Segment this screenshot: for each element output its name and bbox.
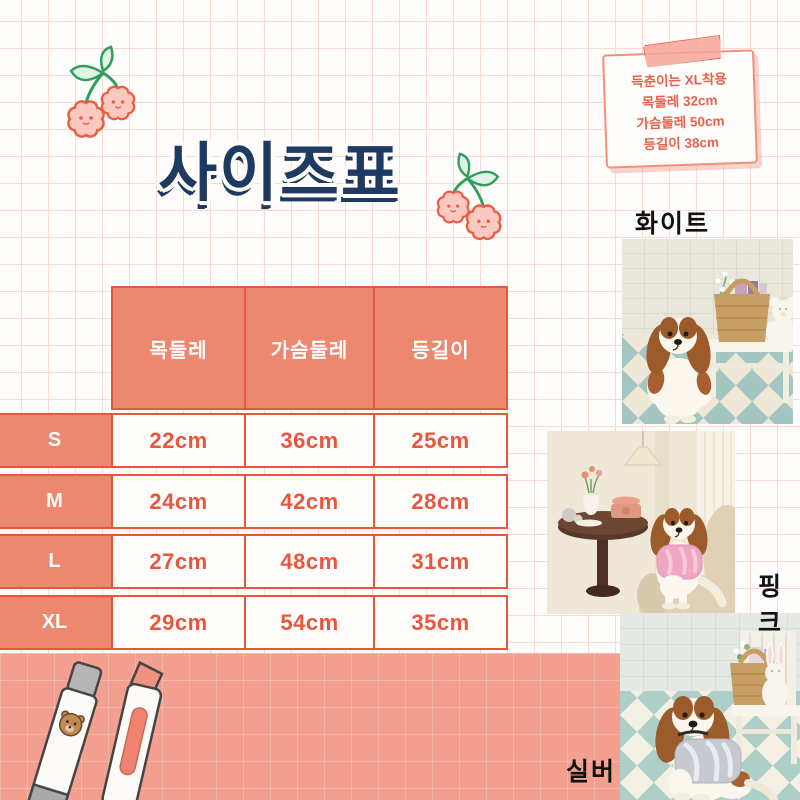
photo-silver-dog [620, 613, 800, 800]
note-line: 등길이 38cm [643, 132, 719, 156]
label-white: 화이트 [635, 204, 710, 240]
cell-s-neck: 22cm [111, 413, 246, 468]
cell-xl-chest: 54cm [244, 595, 375, 650]
row-label-m: M [0, 474, 113, 529]
tile-wall [622, 239, 793, 339]
cell-xl-back: 35cm [373, 595, 508, 650]
table-row: 22cm 36cm 25cm [111, 413, 508, 468]
table-row: 27cm 48cm 31cm [111, 534, 508, 589]
photo-pink-dog [547, 431, 735, 614]
pen-doodles [2, 650, 214, 800]
cell-m-neck: 24cm [111, 474, 246, 529]
pen-with-bear-icon [24, 660, 106, 800]
column-header-back: 등길이 [373, 286, 508, 410]
size-chart-page: 사이즈표 득춘이는 XL [0, 0, 800, 800]
row-label-s: S [0, 413, 113, 468]
cell-s-back: 25cm [373, 413, 508, 468]
column-header-chest: 가슴둘레 [244, 286, 375, 410]
sticky-note: 득춘이는 XL착용 목둘레 32cm 가슴둘레 50cm 등길이 38cm [602, 49, 758, 168]
label-pink: 핑크 [758, 567, 800, 639]
column-header-neck: 목둘레 [111, 286, 246, 410]
cell-s-chest: 36cm [244, 413, 375, 468]
label-silver: 실버 [566, 752, 616, 788]
cell-l-chest: 48cm [244, 534, 375, 589]
highlighter-icon [101, 661, 167, 800]
table-row: 29cm 54cm 35cm [111, 595, 508, 650]
cell-m-back: 28cm [373, 474, 508, 529]
cell-l-neck: 27cm [111, 534, 246, 589]
washi-tape-icon [643, 35, 724, 70]
row-label-l: L [0, 534, 113, 589]
page-title: 사이즈표 [128, 126, 432, 220]
size-table-header: 목둘레 가슴둘레 등길이 [111, 286, 508, 410]
note-line: 목둘레 32cm [642, 90, 718, 114]
table-row: 24cm 42cm 28cm [111, 474, 508, 529]
cell-l-back: 31cm [373, 534, 508, 589]
cherry-icon [430, 150, 522, 245]
vintage-phone [611, 497, 641, 519]
cherry-icon [48, 42, 140, 144]
cell-xl-neck: 29cm [111, 595, 246, 650]
row-label-xl: XL [0, 595, 113, 650]
cell-m-chest: 42cm [244, 474, 375, 529]
photo-white-dog [622, 239, 793, 424]
